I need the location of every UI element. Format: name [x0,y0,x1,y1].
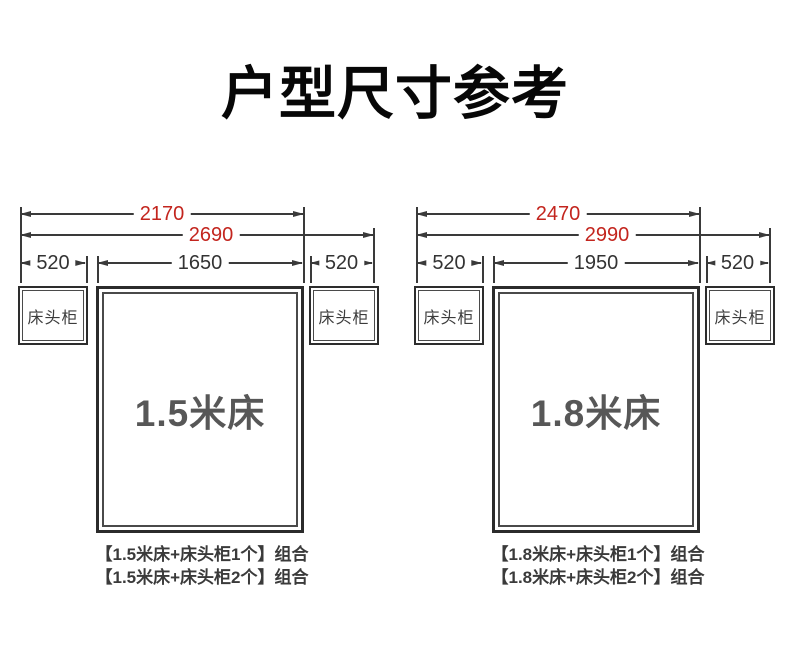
combo-captions: 【1.8米床+床头柜1个】组合 【1.8米床+床头柜2个】组合 [438,544,758,589]
arrowhead-right-icon [471,260,482,266]
arrowhead-right-icon [689,211,700,217]
dimension-label: 2990 [579,223,636,247]
dimension-label: 1950 [568,251,625,275]
nightstand-box-left: 床头柜 [414,286,484,345]
arrowhead-left-icon [416,211,427,217]
nightstand-label: 床头柜 [423,304,474,328]
nightstand-label: 床头柜 [318,304,369,328]
extension-line [482,256,484,283]
arrowhead-left-icon [416,232,427,238]
bed-label: 1.5米床 [135,383,265,437]
nightstand-box-right: 床头柜 [705,286,775,345]
arrowhead-right-icon [688,260,699,266]
dimension-label: 520 [426,251,471,275]
bed-box: 1.8米床 [492,286,700,533]
dimension-label: 520 [715,251,760,275]
arrowhead-left-icon [493,260,504,266]
page: 户型尺寸参考 2170 2690 520 [0,0,790,661]
nightstand-label: 床头柜 [714,304,765,328]
diagram-1-8m-bed: 2470 2990 520 1950 520 [0,0,790,661]
extension-line [416,207,418,283]
caption-line: 【1.8米床+床头柜1个】组合 [438,544,758,567]
bed-label: 1.8米床 [531,383,661,437]
caption-line: 【1.8米床+床头柜2个】组合 [438,567,758,590]
arrowhead-right-icon [759,232,770,238]
extension-line [699,207,701,283]
nightstand-label: 床头柜 [27,304,78,328]
